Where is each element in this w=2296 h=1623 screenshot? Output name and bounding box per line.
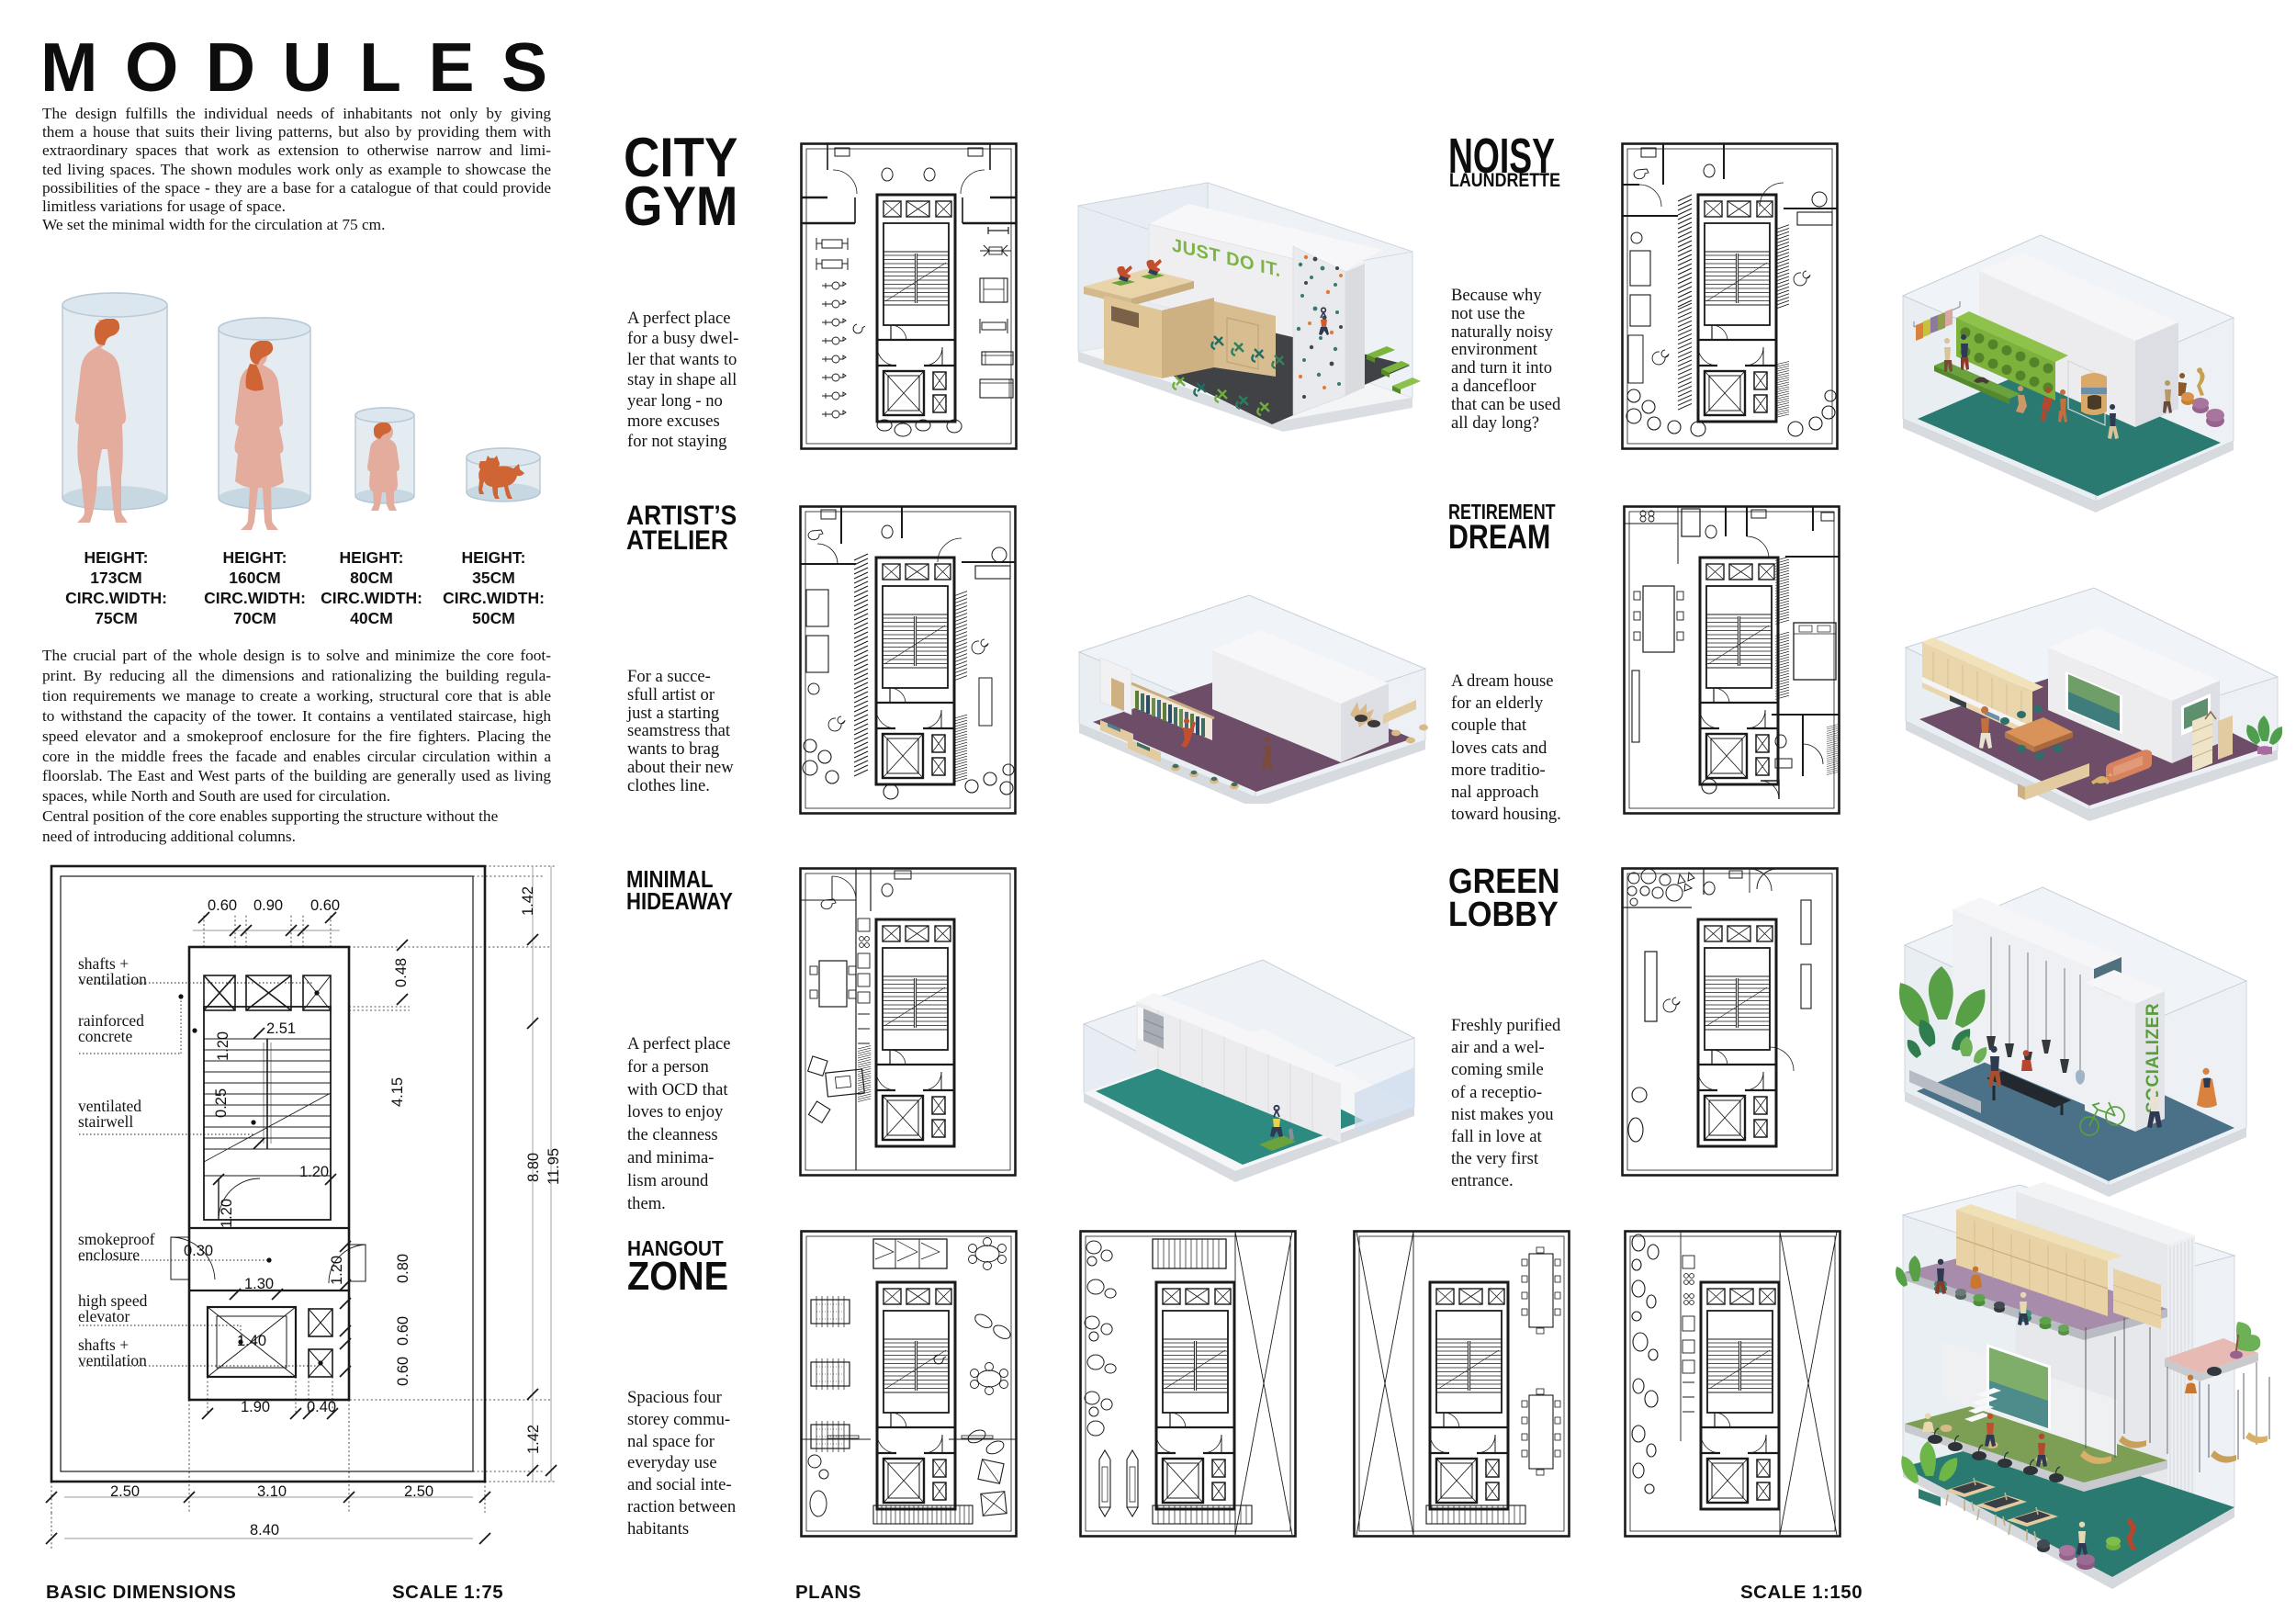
svg-text:ventilation: ventilation: [78, 970, 147, 988]
svg-text:0.60: 0.60: [395, 1316, 411, 1346]
svg-text:enclosure: enclosure: [78, 1245, 140, 1264]
svg-text:4.15: 4.15: [389, 1077, 406, 1107]
svg-text:1.42: 1.42: [520, 886, 536, 916]
svg-text:0.60: 0.60: [310, 897, 340, 914]
svg-text:11.95: 11.95: [546, 1148, 562, 1185]
svg-text:concrete: concrete: [78, 1027, 132, 1045]
svg-text:8.80: 8.80: [525, 1153, 542, 1182]
svg-text:1.20: 1.20: [299, 1164, 329, 1180]
svg-text:SOCIALIZER: SOCIALIZER: [2144, 1003, 2163, 1113]
svg-text:1.40: 1.40: [237, 1333, 266, 1349]
svg-text:0.60: 0.60: [395, 1357, 411, 1386]
svg-text:0.40: 0.40: [307, 1399, 336, 1415]
svg-text:3.10: 3.10: [257, 1483, 287, 1500]
svg-text:2.50: 2.50: [404, 1483, 433, 1500]
svg-text:1.20: 1.20: [329, 1256, 345, 1285]
svg-text:1.42: 1.42: [525, 1425, 542, 1454]
svg-text:elevator: elevator: [78, 1307, 130, 1325]
svg-text:0.48: 0.48: [393, 958, 410, 987]
svg-text:1.90: 1.90: [241, 1399, 270, 1415]
svg-text:1.20: 1.20: [215, 1031, 231, 1061]
svg-text:0.60: 0.60: [208, 897, 237, 914]
svg-text:0.80: 0.80: [395, 1254, 411, 1283]
svg-text:0.90: 0.90: [253, 897, 283, 914]
svg-text:2.51: 2.51: [266, 1020, 296, 1037]
svg-text:ventilation: ventilation: [78, 1351, 147, 1369]
svg-text:0.30: 0.30: [184, 1243, 213, 1259]
svg-text:8.40: 8.40: [250, 1522, 279, 1538]
svg-text:2.50: 2.50: [110, 1483, 140, 1500]
svg-text:1.30: 1.30: [244, 1276, 274, 1292]
svg-text:1.20: 1.20: [219, 1199, 235, 1228]
svg-text:stairwell: stairwell: [78, 1112, 133, 1131]
svg-text:0.25: 0.25: [213, 1088, 230, 1118]
